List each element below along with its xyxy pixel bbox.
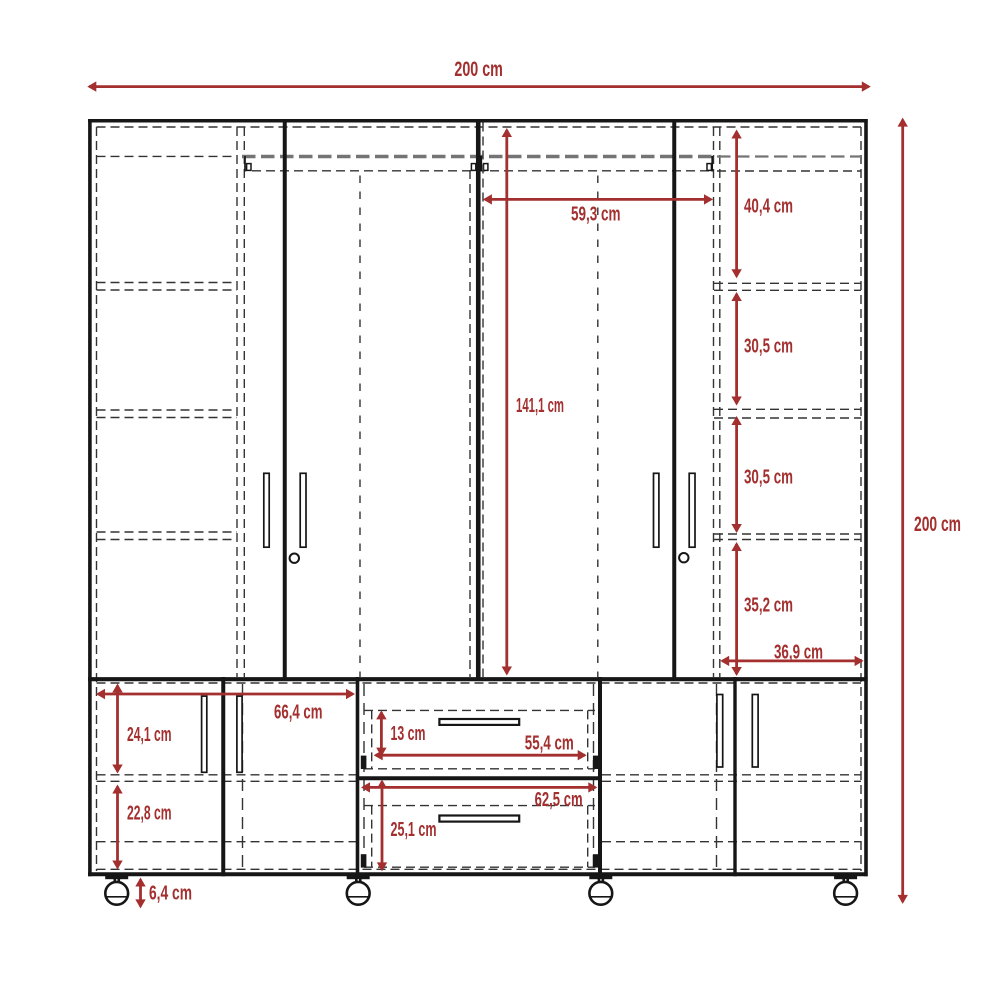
svg-text:35,2 cm: 35,2 cm [744,595,793,617]
svg-text:59,3 cm: 59,3 cm [571,204,621,226]
svg-text:141,1 cm: 141,1 cm [516,395,564,417]
svg-text:36,9 cm: 36,9 cm [774,642,823,664]
svg-text:30,5 cm: 30,5 cm [744,467,793,489]
svg-text:24,1 cm: 24,1 cm [127,724,172,746]
svg-text:30,5 cm: 30,5 cm [744,336,793,358]
svg-text:66,4 cm: 66,4 cm [274,702,323,724]
svg-text:13 cm: 13 cm [391,723,426,745]
svg-text:62,5 cm: 62,5 cm [535,789,583,811]
svg-text:40,4 cm: 40,4 cm [744,196,793,218]
svg-text:200 cm: 200 cm [914,513,961,536]
svg-text:200 cm: 200 cm [454,58,503,81]
svg-text:22,8 cm: 22,8 cm [127,803,172,825]
svg-text:55,4 cm: 55,4 cm [525,733,574,755]
svg-text:25,1 cm: 25,1 cm [391,819,437,841]
svg-text:6,4 cm: 6,4 cm [149,883,192,905]
